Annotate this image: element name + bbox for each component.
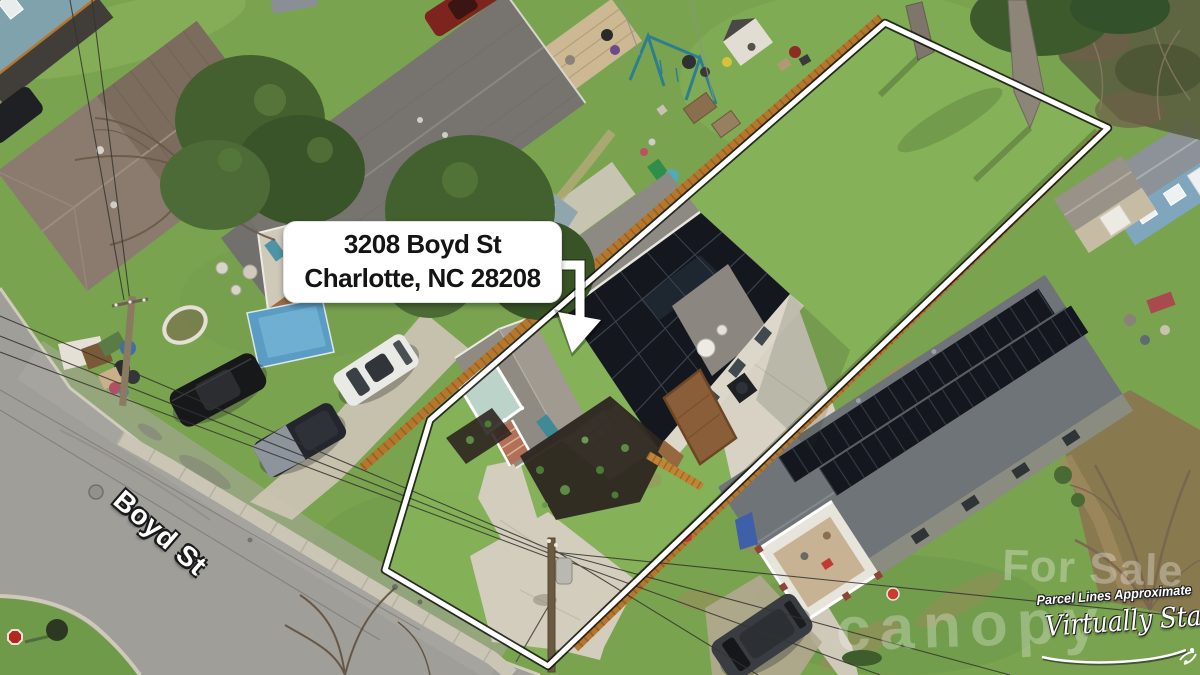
address-callout: 3208 Boyd St Charlotte, NC 28208 — [283, 221, 562, 303]
satellite-dish-icon — [697, 339, 715, 357]
transformer — [556, 558, 572, 584]
bush — [1054, 466, 1072, 484]
stop-sign-icon — [8, 630, 22, 644]
manhole-cover — [89, 485, 103, 499]
address-line1: 3208 Boyd St — [344, 228, 501, 262]
address-line2: Charlotte, NC 28208 — [304, 262, 540, 296]
bush — [1071, 493, 1085, 507]
corner-bush — [46, 619, 68, 641]
aerial-photo: For Sale canopy 3208 Boyd St Charlotte, … — [0, 0, 1200, 675]
